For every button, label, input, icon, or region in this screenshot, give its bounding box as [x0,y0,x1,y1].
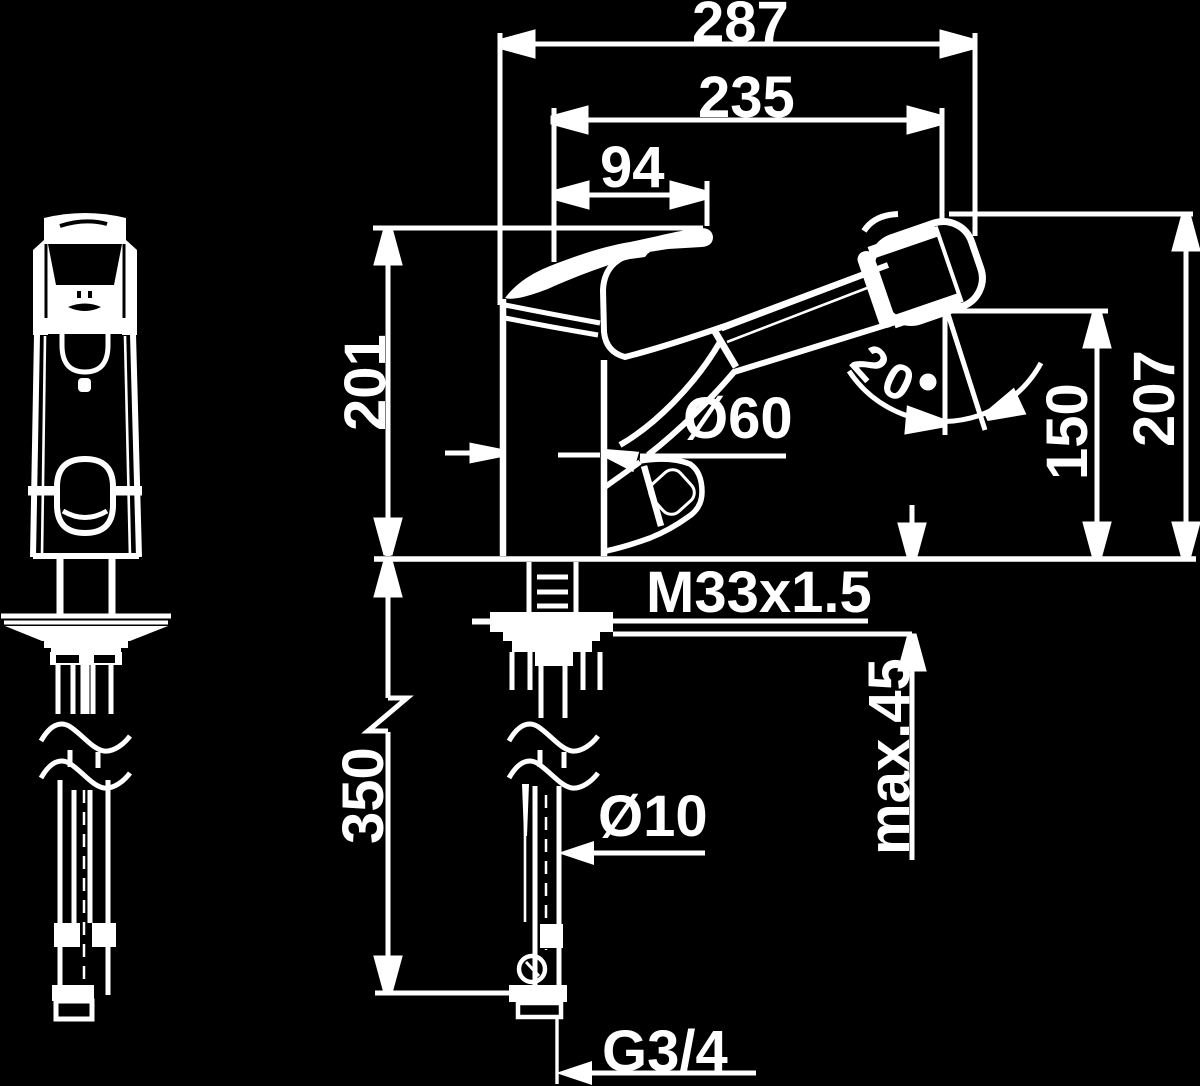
svg-text:201: 201 [333,334,398,431]
svg-text:M33x1.5: M33x1.5 [646,560,872,625]
svg-text:350: 350 [331,747,396,844]
svg-text:94: 94 [600,135,665,200]
svg-text:Ø60: Ø60 [683,386,793,451]
svg-text:150: 150 [1035,383,1100,480]
svg-text:207: 207 [1122,350,1187,447]
svg-text:Ø10: Ø10 [598,784,708,849]
svg-text:287: 287 [692,0,789,55]
svg-text:max.45: max.45 [857,658,922,855]
svg-text:235: 235 [698,65,795,130]
